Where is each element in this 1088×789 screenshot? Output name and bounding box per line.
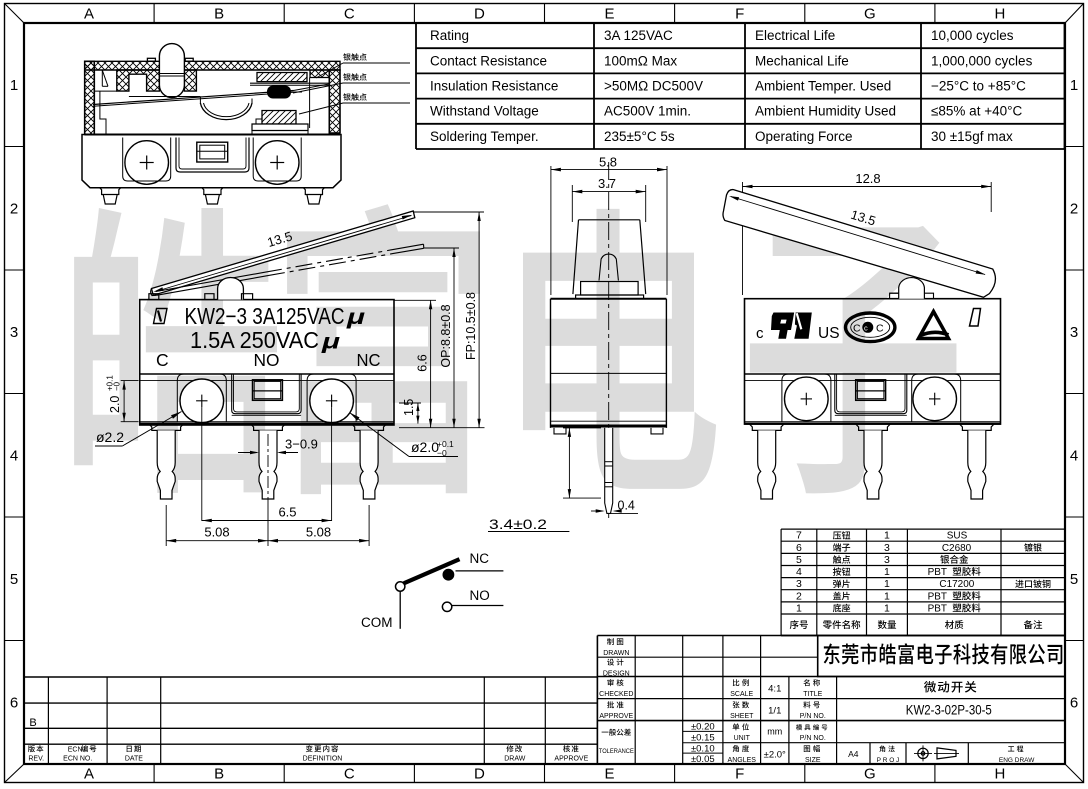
svg-text:ECN: ECN	[68, 747, 83, 754]
svg-text:B: B	[214, 766, 224, 783]
svg-text:A4: A4	[848, 749, 859, 759]
svg-text:−25°C to +85°C: −25°C to +85°C	[931, 79, 1026, 94]
svg-text:5.8: 5.8	[599, 155, 617, 170]
svg-text:Mechanical Life: Mechanical Life	[755, 53, 849, 68]
svg-text:F: F	[735, 6, 744, 23]
svg-text:SUS: SUS	[947, 531, 968, 542]
svg-text:Operating Force: Operating Force	[755, 129, 853, 144]
svg-text:6: 6	[10, 694, 18, 711]
svg-text:c: c	[756, 325, 764, 342]
svg-text:G: G	[864, 766, 876, 783]
svg-text:−0: −0	[113, 381, 122, 391]
svg-text:Ambient Temper. Used: Ambient Temper. Used	[755, 79, 891, 94]
svg-text:C: C	[344, 6, 355, 23]
svg-text:1: 1	[796, 602, 802, 614]
svg-text:COM: COM	[361, 615, 393, 630]
svg-text:KW2−3 3A125VAC: KW2−3 3A125VAC	[185, 303, 345, 329]
svg-text:30 ±15gf max: 30 ±15gf max	[931, 129, 1013, 144]
svg-text:4: 4	[796, 566, 802, 578]
svg-text:SIZE: SIZE	[805, 757, 821, 764]
svg-text:5: 5	[1070, 571, 1078, 588]
svg-text:C17200: C17200	[939, 579, 974, 590]
svg-text:NO: NO	[254, 350, 280, 370]
svg-text:OP:8.8±0.8: OP:8.8±0.8	[439, 304, 453, 367]
svg-text:NC: NC	[357, 350, 381, 370]
svg-text:C2680: C2680	[942, 543, 972, 554]
svg-text:mm: mm	[767, 727, 782, 737]
svg-text:A: A	[84, 766, 94, 783]
svg-text:c: c	[864, 324, 868, 333]
svg-text:P R O J: P R O J	[877, 757, 900, 764]
svg-text:SCALE: SCALE	[730, 691, 753, 698]
svg-text:10,000 cycles: 10,000 cycles	[931, 28, 1014, 43]
svg-text:H: H	[995, 766, 1006, 783]
svg-text:E: E	[605, 766, 615, 783]
svg-text:US: US	[818, 325, 840, 342]
svg-text:Withstand Voltage: Withstand Voltage	[430, 104, 539, 119]
svg-text:3−0.9: 3−0.9	[285, 437, 318, 452]
svg-text:3: 3	[10, 324, 18, 341]
svg-text:C: C	[876, 323, 884, 335]
svg-text:ø2.0: ø2.0	[411, 439, 439, 455]
svg-text:Rating: Rating	[430, 28, 469, 43]
svg-text:1,000,000 cycles: 1,000,000 cycles	[931, 53, 1033, 68]
svg-text:3: 3	[796, 578, 802, 590]
svg-text:ECN NO.: ECN NO.	[63, 756, 92, 763]
svg-text:μ: μ	[321, 331, 341, 354]
svg-text:4: 4	[10, 447, 18, 464]
svg-text:6: 6	[1070, 694, 1078, 711]
svg-text:±0.20: ±0.20	[691, 722, 715, 733]
svg-text:D: D	[474, 766, 485, 783]
svg-text:TITLE: TITLE	[803, 691, 822, 698]
svg-text:6.5: 6.5	[278, 505, 296, 520]
svg-text:3.4±0.2: 3.4±0.2	[489, 516, 547, 532]
svg-text:≤85% at +40°C: ≤85% at +40°C	[931, 104, 1022, 119]
svg-text:3: 3	[884, 542, 890, 554]
svg-text:13.5: 13.5	[849, 207, 878, 229]
svg-text:NO: NO	[470, 588, 490, 603]
svg-text:P/N NO.: P/N NO.	[800, 713, 826, 720]
svg-text:0.4: 0.4	[618, 499, 635, 513]
svg-text:ENG DRAW: ENG DRAW	[999, 757, 1035, 764]
svg-text:2.0: 2.0	[108, 396, 122, 413]
svg-text:KW2-3-02P-30-5: KW2-3-02P-30-5	[906, 701, 992, 717]
svg-text:2: 2	[10, 200, 18, 217]
svg-text:±0.10: ±0.10	[691, 743, 715, 754]
svg-text:A: A	[84, 6, 94, 23]
svg-text:PBT: PBT	[928, 591, 947, 602]
svg-text:2: 2	[1070, 200, 1078, 217]
svg-text:μ: μ	[346, 306, 366, 329]
svg-text:E: E	[605, 6, 615, 23]
svg-text:3A 125VAC: 3A 125VAC	[604, 28, 673, 43]
svg-text:3.7: 3.7	[598, 176, 616, 191]
svg-text:1: 1	[884, 602, 890, 614]
svg-text:7: 7	[796, 530, 802, 542]
svg-text:ø2.2: ø2.2	[96, 429, 124, 445]
svg-text:DESIGN: DESIGN	[603, 670, 630, 677]
svg-text:235±5°C 5s: 235±5°C 5s	[604, 129, 675, 144]
svg-text:REV.: REV.	[28, 756, 44, 763]
svg-text:3: 3	[1070, 324, 1078, 341]
svg-text:Insulation Resistance: Insulation Resistance	[430, 79, 558, 94]
svg-text:1: 1	[884, 530, 890, 542]
svg-text:1: 1	[884, 566, 890, 578]
svg-text:DRAW: DRAW	[504, 756, 526, 763]
svg-text:B: B	[29, 717, 36, 729]
svg-text:DATE: DATE	[125, 756, 143, 763]
svg-text:5.08: 5.08	[306, 525, 331, 540]
svg-text:6.6: 6.6	[416, 354, 430, 371]
svg-text:B: B	[214, 6, 224, 23]
svg-text:FP:10.5±0.8: FP:10.5±0.8	[464, 292, 478, 360]
svg-text:3: 3	[884, 554, 890, 566]
svg-text:TOLERANCE: TOLERANCE	[599, 748, 635, 755]
svg-text:DRAWN: DRAWN	[603, 650, 629, 657]
svg-text:C: C	[853, 323, 861, 335]
svg-text:5: 5	[796, 554, 802, 566]
svg-text:1: 1	[1070, 77, 1078, 94]
svg-text:Contact Resistance: Contact Resistance	[430, 53, 547, 68]
svg-text:1: 1	[884, 590, 890, 602]
svg-text:NC: NC	[470, 551, 490, 566]
svg-text:UNIT: UNIT	[734, 735, 751, 742]
svg-text:Electrical Life: Electrical Life	[755, 28, 835, 43]
svg-text:SHEET: SHEET	[730, 713, 754, 720]
svg-text:APPROVE: APPROVE	[599, 713, 633, 720]
svg-text:P/N NO.: P/N NO.	[800, 735, 826, 742]
svg-text:5.08: 5.08	[204, 525, 229, 540]
svg-text:±0.15: ±0.15	[691, 733, 715, 744]
svg-text:F: F	[735, 766, 744, 783]
svg-text:4: 4	[1070, 447, 1078, 464]
svg-text:±0.05: ±0.05	[691, 754, 715, 765]
svg-text:12.8: 12.8	[855, 171, 880, 186]
svg-text:1.5: 1.5	[402, 399, 416, 416]
svg-text:>50MΩ DC500V: >50MΩ DC500V	[604, 79, 703, 94]
svg-text:D: D	[474, 6, 485, 23]
svg-text:1/1: 1/1	[768, 706, 781, 717]
svg-text:±2.0°: ±2.0°	[764, 749, 786, 760]
svg-text:G: G	[864, 6, 876, 23]
svg-text:ANGLES: ANGLES	[728, 757, 757, 764]
svg-text:5: 5	[10, 571, 18, 588]
svg-text:6: 6	[796, 542, 802, 554]
svg-text:Soldering Temper.: Soldering Temper.	[430, 129, 539, 144]
svg-text:1: 1	[10, 77, 18, 94]
svg-text:C: C	[344, 766, 355, 783]
svg-text:CHECKED: CHECKED	[599, 691, 633, 698]
svg-text:100mΩ Max: 100mΩ Max	[604, 53, 677, 68]
svg-text:PBT: PBT	[928, 603, 947, 614]
svg-text:1: 1	[884, 578, 890, 590]
svg-text:H: H	[995, 6, 1006, 23]
svg-text:DEFINITION: DEFINITION	[303, 756, 343, 763]
svg-text:2: 2	[796, 590, 802, 602]
svg-text:C: C	[156, 350, 169, 370]
svg-text:APPROVE: APPROVE	[554, 756, 588, 763]
svg-text:AC500V 1min.: AC500V 1min.	[604, 104, 691, 119]
svg-text:Ambient Humidity Used: Ambient Humidity Used	[755, 104, 896, 119]
svg-text:PBT: PBT	[928, 567, 947, 578]
svg-text:4:1: 4:1	[768, 684, 781, 695]
